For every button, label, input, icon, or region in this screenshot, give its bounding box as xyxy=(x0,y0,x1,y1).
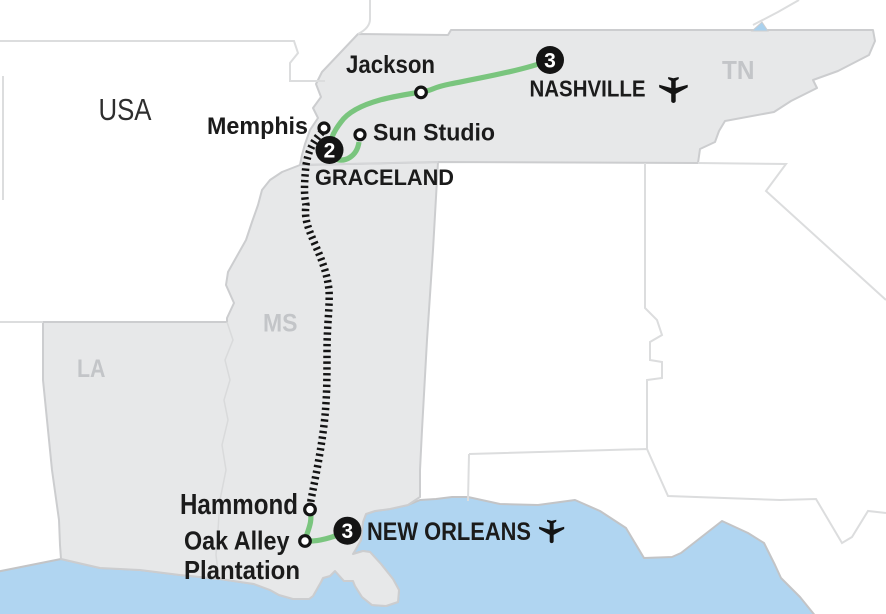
svg-text:NASHVILLE: NASHVILLE xyxy=(530,76,646,102)
svg-text:MS: MS xyxy=(263,310,298,338)
svg-text:Sun Studio: Sun Studio xyxy=(373,120,495,147)
svg-text:USA: USA xyxy=(99,92,152,127)
svg-text:GRACELAND: GRACELAND xyxy=(315,165,454,190)
svg-text:Memphis: Memphis xyxy=(207,113,308,140)
svg-text:Jackson: Jackson xyxy=(346,51,435,79)
svg-text:LA: LA xyxy=(77,355,106,383)
svg-text:Plantation: Plantation xyxy=(184,555,300,585)
svg-text:3: 3 xyxy=(544,50,556,73)
svg-text:TN: TN xyxy=(722,57,755,85)
svg-text:2: 2 xyxy=(324,140,336,163)
svg-text:NEW ORLEANS: NEW ORLEANS xyxy=(367,518,531,546)
svg-text:3: 3 xyxy=(342,520,354,543)
svg-text:Hammond: Hammond xyxy=(180,489,298,521)
svg-text:Oak Alley: Oak Alley xyxy=(184,526,290,556)
